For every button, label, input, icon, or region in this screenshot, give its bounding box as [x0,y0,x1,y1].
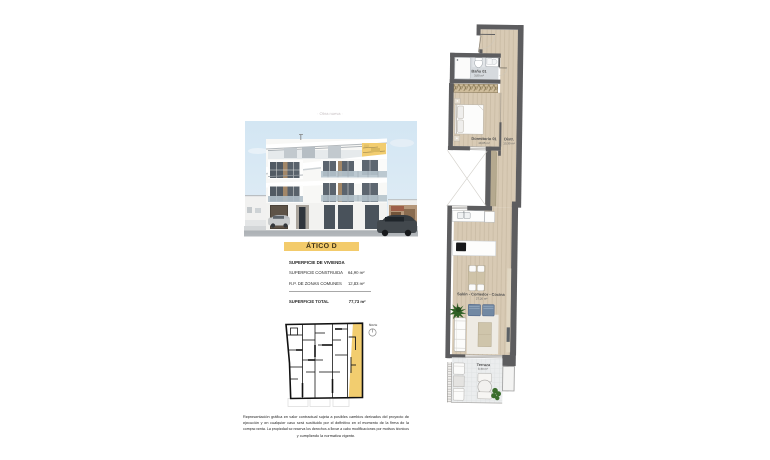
svg-text:8,30 m²: 8,30 m² [478,367,488,371]
svg-text:Norte: Norte [369,323,378,327]
svg-text:19,05 m²: 19,05 m² [478,141,489,145]
svg-text:3,80 m²: 3,80 m² [474,74,484,78]
svg-text:13,30 m²: 13,30 m² [503,141,514,145]
svg-text:27,20 m²: 27,20 m² [476,297,487,301]
